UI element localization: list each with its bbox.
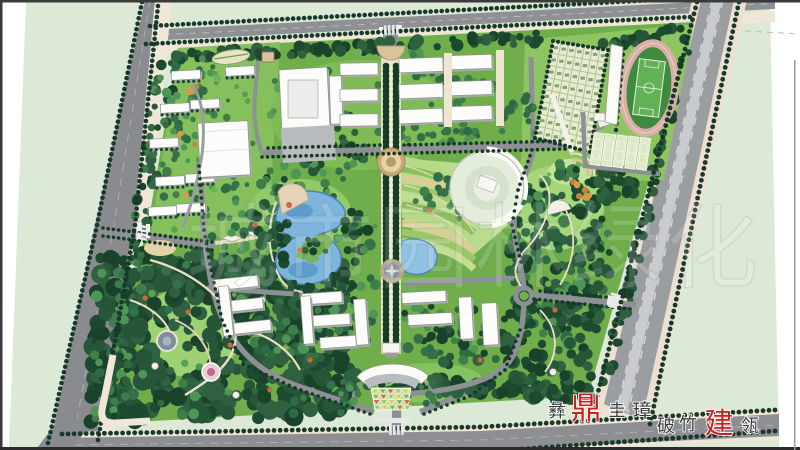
svg-text:瓴: 瓴 bbox=[741, 416, 759, 436]
svg-text:竹: 竹 bbox=[679, 414, 697, 434]
svg-text:彝: 彝 bbox=[548, 401, 566, 421]
svg-text:圭: 圭 bbox=[609, 401, 626, 420]
svg-text:璋: 璋 bbox=[632, 400, 651, 422]
svg-text:破: 破 bbox=[657, 416, 675, 436]
svg-text:城市园林绿化: 城市园林绿化 bbox=[186, 198, 762, 300]
svg-text:鼎: 鼎 bbox=[571, 391, 602, 426]
svg-text:建: 建 bbox=[704, 407, 733, 440]
